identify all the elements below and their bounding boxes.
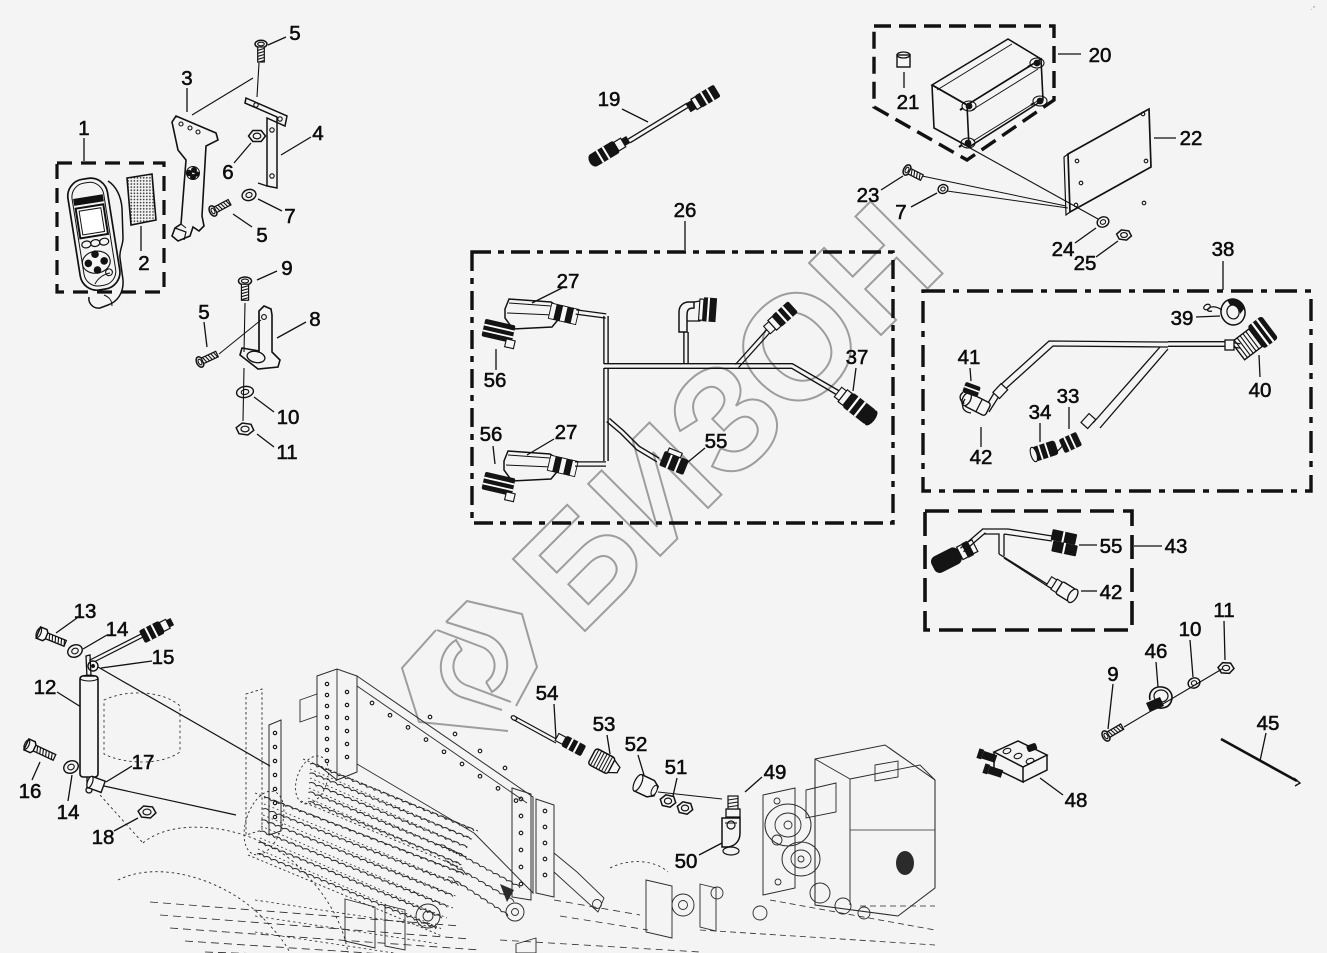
svg-text:51: 51: [665, 756, 688, 779]
svg-text:52: 52: [625, 733, 648, 756]
svg-text:54: 54: [536, 682, 559, 705]
svg-text:49: 49: [764, 761, 787, 784]
svg-text:37: 37: [846, 346, 869, 369]
svg-text:9: 9: [281, 257, 292, 280]
svg-text:55: 55: [1100, 535, 1123, 558]
svg-text:27: 27: [555, 421, 578, 444]
svg-text:19: 19: [598, 88, 621, 111]
svg-text:42: 42: [970, 446, 993, 469]
svg-text:25: 25: [1074, 252, 1097, 275]
svg-text:10: 10: [277, 406, 300, 429]
svg-text:38: 38: [1212, 238, 1235, 261]
svg-text:18: 18: [92, 826, 115, 849]
svg-text:9: 9: [1107, 663, 1118, 686]
svg-text:3: 3: [181, 67, 192, 90]
svg-text:21: 21: [897, 91, 920, 114]
svg-text:11: 11: [1213, 599, 1234, 622]
svg-text:56: 56: [484, 369, 507, 392]
svg-text:14: 14: [106, 618, 129, 641]
svg-text:13: 13: [74, 600, 97, 623]
svg-text:48: 48: [1065, 789, 1088, 812]
svg-text:55: 55: [705, 430, 728, 453]
svg-text:20: 20: [1089, 44, 1112, 67]
svg-text:34: 34: [1029, 401, 1052, 424]
svg-text:6: 6: [222, 161, 233, 184]
svg-text:16: 16: [19, 780, 42, 803]
svg-text:1: 1: [78, 117, 89, 140]
svg-text:·″: ·″: [1310, 5, 1316, 14]
svg-text:5: 5: [256, 224, 267, 247]
svg-text:7: 7: [895, 201, 906, 224]
svg-text:46: 46: [1145, 640, 1168, 663]
svg-text:50: 50: [675, 850, 698, 873]
svg-text:56: 56: [480, 423, 503, 446]
svg-text:5: 5: [289, 22, 300, 45]
svg-text:15: 15: [152, 646, 175, 669]
svg-text:43: 43: [1165, 535, 1188, 558]
svg-text:4: 4: [312, 122, 323, 145]
svg-text:33: 33: [1057, 385, 1080, 408]
svg-text:17: 17: [132, 751, 155, 774]
svg-text:7: 7: [284, 205, 295, 228]
svg-text:14: 14: [57, 801, 80, 824]
svg-text:39: 39: [1171, 307, 1194, 330]
svg-text:41: 41: [958, 346, 981, 369]
svg-text:40: 40: [1249, 379, 1272, 402]
svg-text:5: 5: [198, 301, 209, 324]
svg-text:26: 26: [674, 199, 697, 222]
svg-text:45: 45: [1257, 712, 1280, 735]
svg-text:12: 12: [34, 676, 57, 699]
svg-text:22: 22: [1180, 127, 1203, 150]
svg-text:8: 8: [309, 308, 320, 331]
svg-text:53: 53: [593, 713, 616, 736]
svg-text:42: 42: [1100, 581, 1123, 604]
svg-text:10: 10: [1179, 618, 1202, 641]
svg-text:24: 24: [1052, 238, 1075, 261]
svg-text:23: 23: [857, 184, 880, 207]
svg-text:2: 2: [138, 252, 149, 275]
svg-text:11: 11: [276, 441, 297, 464]
